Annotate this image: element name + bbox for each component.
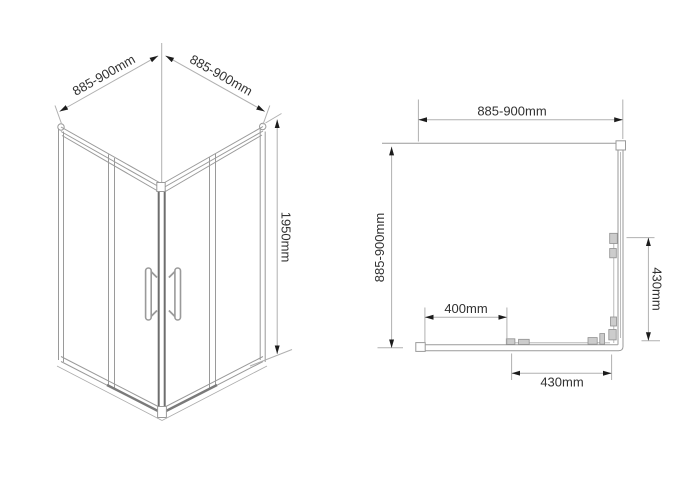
iso-height-label: 1950mm [279,212,294,263]
door-roller-bracket [506,339,515,345]
plan-frame [416,141,626,352]
plan-bottom-left-wall-profile [416,343,425,352]
door-roller-bracket [610,233,618,243]
iso-left-extension-line [55,106,62,125]
left-door-handle [146,268,157,320]
door-roller-bracket [609,330,616,340]
door-roller-bracket [610,249,617,258]
bottom-rails [57,357,267,421]
right-corner-post [260,123,266,362]
plan-side-door-label: 430mm [650,267,665,310]
plan-top-right-wall-profile [616,141,626,150]
right-door-handle [169,268,181,320]
drawing-canvas: 885-900mm 885-900mm 1950mm [0,0,700,495]
iso-height-top-extension [266,114,282,124]
plan-view: 885-900mm 885-900mm 400mm 430mm 430mm [372,100,665,390]
door-roller-bracket [611,317,617,326]
drawing-page: 885-900mm 885-900mm 1950mm [0,0,700,495]
plan-depth-label: 885-900mm [372,213,387,282]
plan-sliding-doors [506,233,617,344]
isometric-view: 885-900mm 885-900mm 1950mm [55,43,294,421]
front-corner-bottom-cap [158,407,167,418]
plan-opening-label: 400mm [444,301,487,316]
front-corner-post [157,183,165,409]
door-roller-bracket [588,338,597,345]
iso-left-width-label: 885-900mm [70,52,138,99]
door-roller-bracket [519,339,530,344]
iso-right-width-label: 885-900mm [187,52,255,99]
door-roller-bracket [600,334,605,345]
iso-right-extension-line [263,106,270,125]
plan-width-label: 885-900mm [477,104,546,119]
iso-height-bottom-extension [250,350,292,367]
left-corner-post [58,124,64,362]
plan-front-door-label: 430mm [540,375,583,390]
left-face-panel-edges [109,155,115,390]
right-face-panel-edges [210,154,216,389]
front-corner-top-cap [157,183,165,192]
